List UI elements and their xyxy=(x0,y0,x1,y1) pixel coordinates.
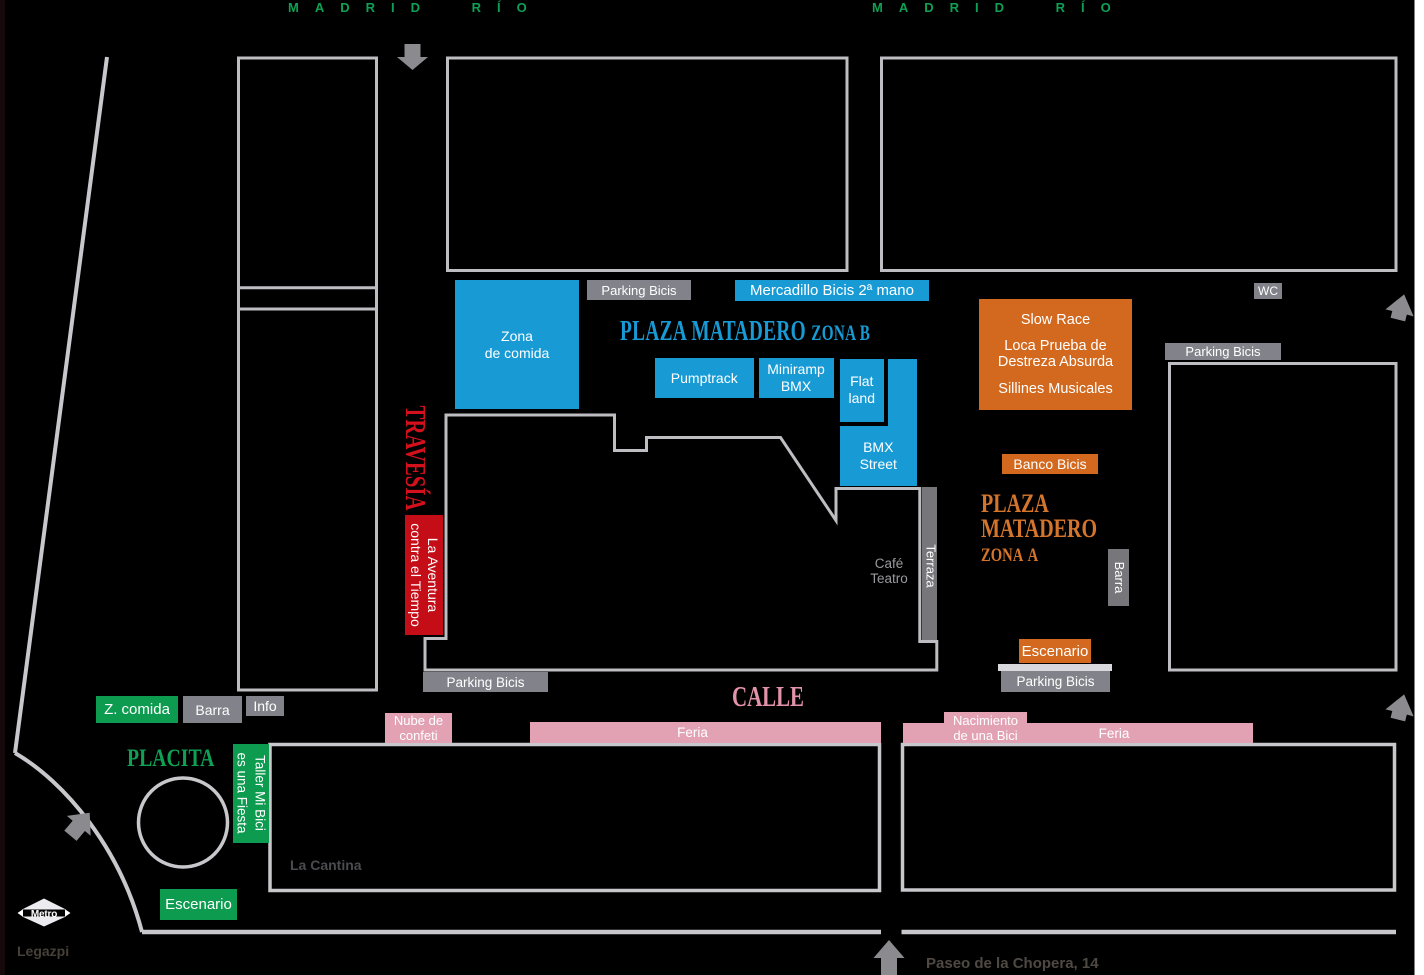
svg-text:Metro: Metro xyxy=(31,909,57,920)
